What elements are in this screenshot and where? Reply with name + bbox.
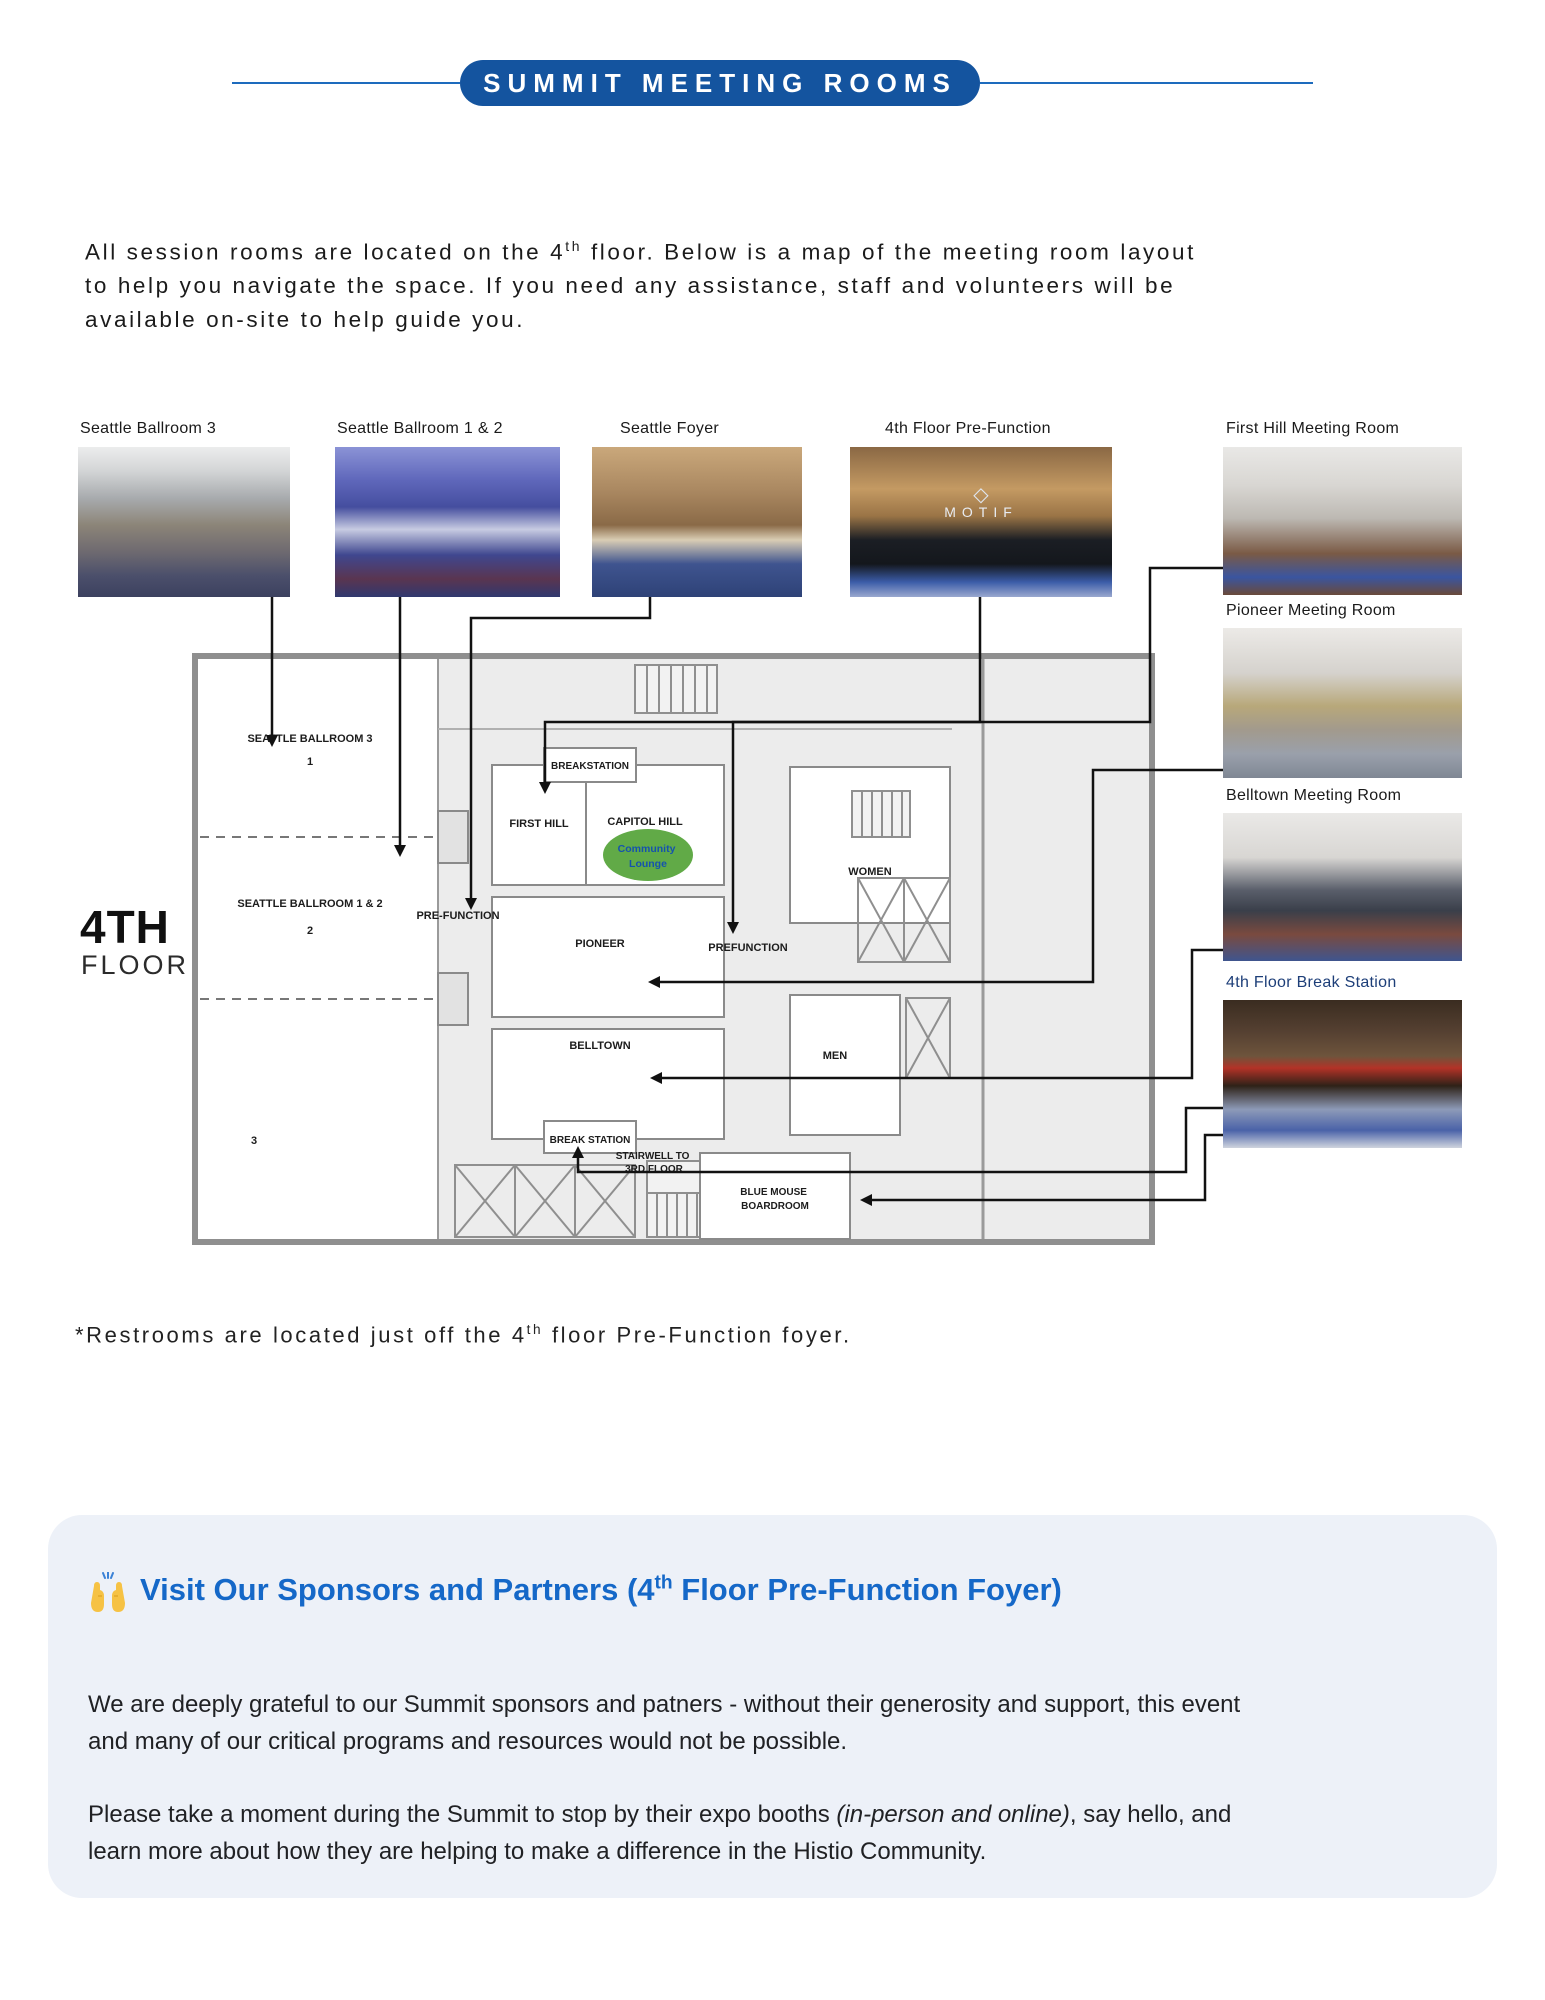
photo-caption: First Hill Meeting Room xyxy=(1226,420,1399,438)
label-belltown: BELLTOWN xyxy=(569,1040,630,1052)
photo-caption: Seattle Foyer xyxy=(620,420,719,438)
photo-caption-break-station: 4th Floor Break Station xyxy=(1226,974,1397,992)
floor-plan: SEATTLE BALLROOM 3 1 SEATTLE BALLROOM 1 … xyxy=(192,653,1155,1245)
sponsors-paragraph-2: Please take a moment during the Summit t… xyxy=(88,1796,1428,1870)
stairs-mid-icon xyxy=(852,791,910,837)
intro-superscript: th xyxy=(565,238,582,254)
photo-caption: Seattle Ballroom 1 & 2 xyxy=(337,420,503,438)
header-rule-left xyxy=(232,82,460,84)
section-badge-label: SUMMIT MEETING ROOMS xyxy=(483,68,957,99)
label-seattle-ballroom-3: SEATTLE BALLROOM 3 xyxy=(247,733,372,745)
label-women: WOMEN xyxy=(848,866,891,878)
seattle-foyer-photo xyxy=(592,447,802,597)
break-station-photo xyxy=(1223,1000,1462,1148)
sponsors-paragraph-1: We are deeply grateful to our Summit spo… xyxy=(88,1686,1428,1760)
label-prefunction-mid: PREFUNCTION xyxy=(708,942,788,954)
heading-superscript: th xyxy=(655,1573,673,1594)
motif-sign: ◇ MOTIF xyxy=(850,486,1112,520)
floor-number-label: 4TH xyxy=(80,900,170,954)
italic-phrase: (in-person and online) xyxy=(836,1801,1069,1828)
seattle-ballroom-1-2-photo xyxy=(335,447,560,597)
photo-caption: Seattle Ballroom 3 xyxy=(80,420,216,438)
program-page: SUMMIT MEETING ROOMS All session rooms a… xyxy=(0,0,1545,2000)
floor-word-label: FLOOR xyxy=(81,950,189,981)
label-seattle-ballroom-1-2: SEATTLE BALLROOM 1 & 2 xyxy=(237,898,382,910)
seattle-ballroom-3-photo xyxy=(78,447,290,597)
belltown-photo xyxy=(1223,813,1462,961)
label-capitol-hill: CAPITOL HILL xyxy=(607,816,683,828)
label-first-hill: FIRST HILL xyxy=(509,818,569,830)
label-section-2: 2 xyxy=(307,925,313,937)
photo-caption: Belltown Meeting Room xyxy=(1226,787,1401,805)
header-rule-right xyxy=(980,82,1313,84)
label-pioneer: PIONEER xyxy=(575,938,625,950)
stairs-top-icon xyxy=(635,665,717,713)
label-section-1: 1 xyxy=(307,756,313,768)
community-lounge-marker xyxy=(603,829,693,881)
first-hill-photo xyxy=(1223,447,1462,595)
pre-function-photo: ◇ MOTIF xyxy=(850,447,1112,597)
raised-hands-icon xyxy=(88,1572,128,1612)
footnote-superscript: th xyxy=(527,1322,544,1337)
label-section-3: 3 xyxy=(251,1135,257,1147)
photo-caption: Pioneer Meeting Room xyxy=(1226,602,1396,620)
intro-paragraph: All session rooms are located on the 4th… xyxy=(85,229,1505,338)
pioneer-photo xyxy=(1223,628,1462,778)
restrooms-footnote: *Restrooms are located just off the 4th … xyxy=(75,1322,1275,1348)
sponsors-heading: Visit Our Sponsors and Partners (4th Flo… xyxy=(88,1572,1062,1612)
label-men: MEN xyxy=(823,1050,848,1062)
motif-logo-icon: ◇ xyxy=(850,486,1112,504)
photo-caption: 4th Floor Pre-Function xyxy=(885,420,1051,438)
label-break-station: BREAK STATION xyxy=(550,1135,631,1146)
label-breakstation-top: BREAKSTATION xyxy=(551,761,629,772)
label-pre-function-west: PRE-FUNCTION xyxy=(416,910,499,922)
section-badge: SUMMIT MEETING ROOMS xyxy=(460,60,980,106)
